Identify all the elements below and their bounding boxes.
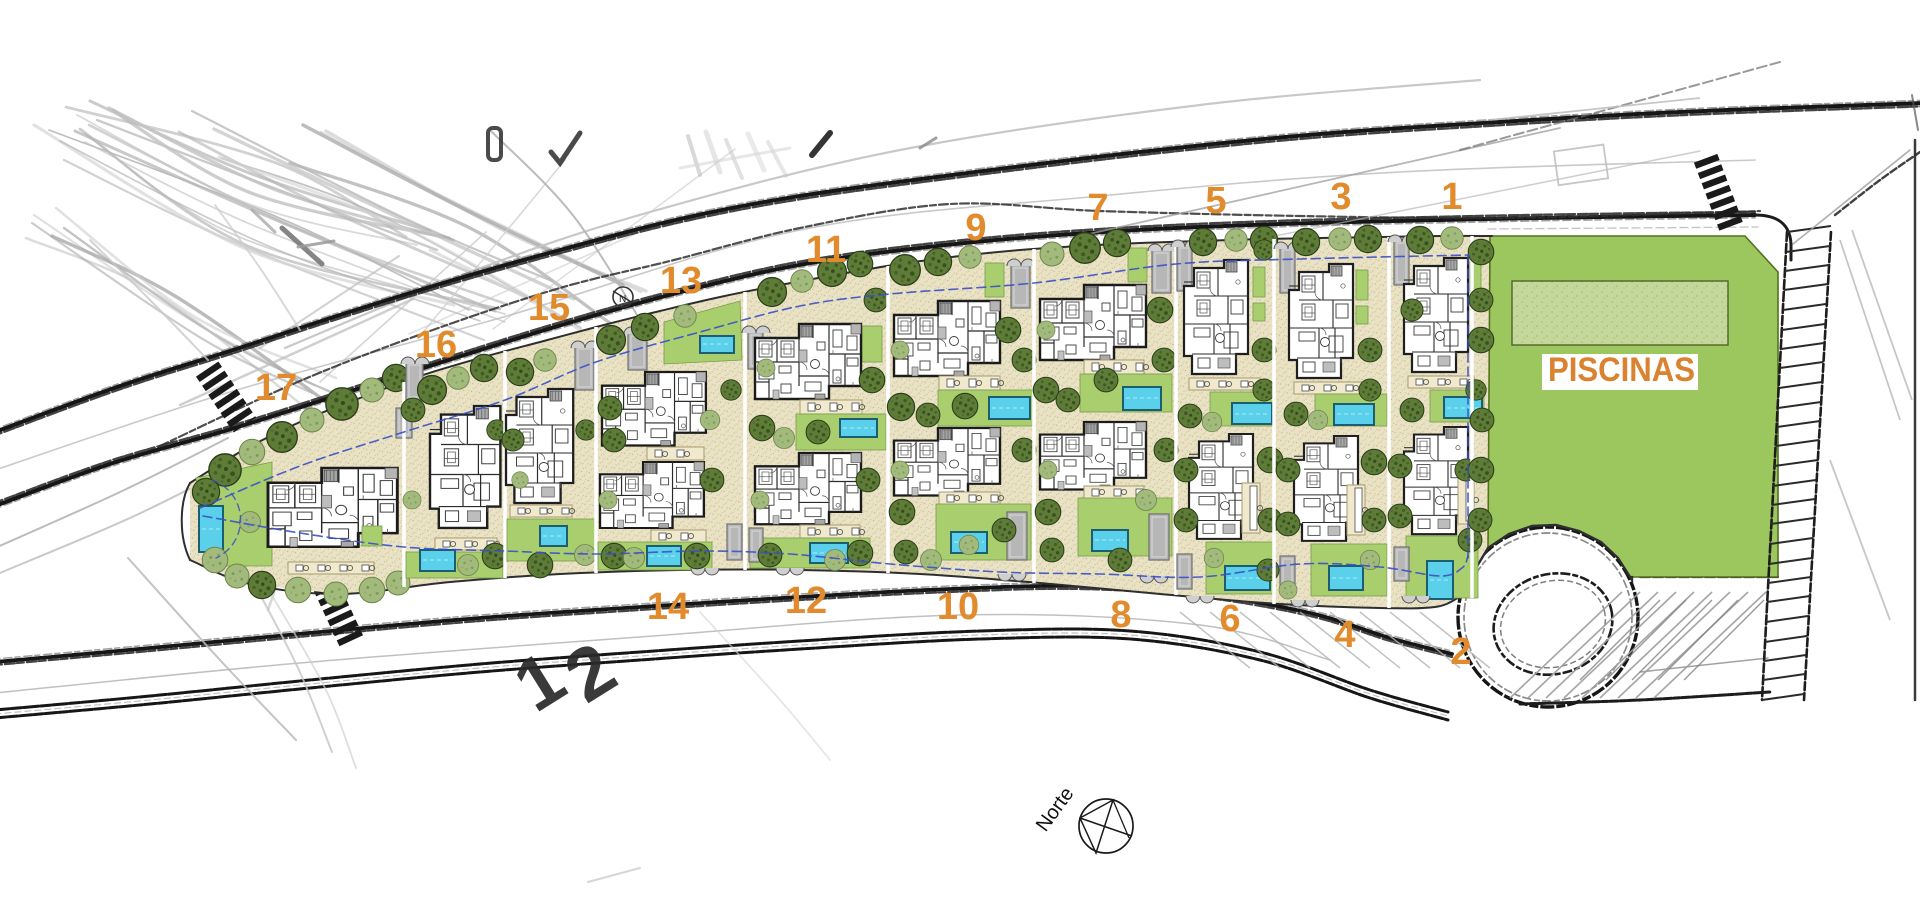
svg-text:9: 9 (965, 207, 986, 249)
svg-text:5: 5 (1205, 180, 1226, 222)
svg-text:11: 11 (806, 229, 846, 271)
svg-text:7: 7 (1087, 187, 1108, 229)
svg-text:PISCINAS: PISCINAS (1548, 351, 1695, 389)
svg-text:4: 4 (1334, 614, 1355, 656)
svg-text:3: 3 (1330, 176, 1351, 218)
svg-text:8: 8 (1110, 594, 1131, 636)
svg-text:6: 6 (1219, 598, 1240, 640)
svg-text:15: 15 (528, 287, 570, 329)
svg-text:16: 16 (415, 324, 457, 366)
svg-text:13: 13 (660, 260, 702, 302)
svg-text:10: 10 (937, 586, 979, 628)
svg-text:2: 2 (1450, 631, 1471, 673)
svg-text:N: N (619, 294, 626, 305)
svg-text:12: 12 (785, 580, 827, 622)
svg-text:1: 1 (1441, 176, 1462, 218)
svg-text:14: 14 (647, 586, 689, 628)
svg-text:17: 17 (255, 367, 297, 409)
